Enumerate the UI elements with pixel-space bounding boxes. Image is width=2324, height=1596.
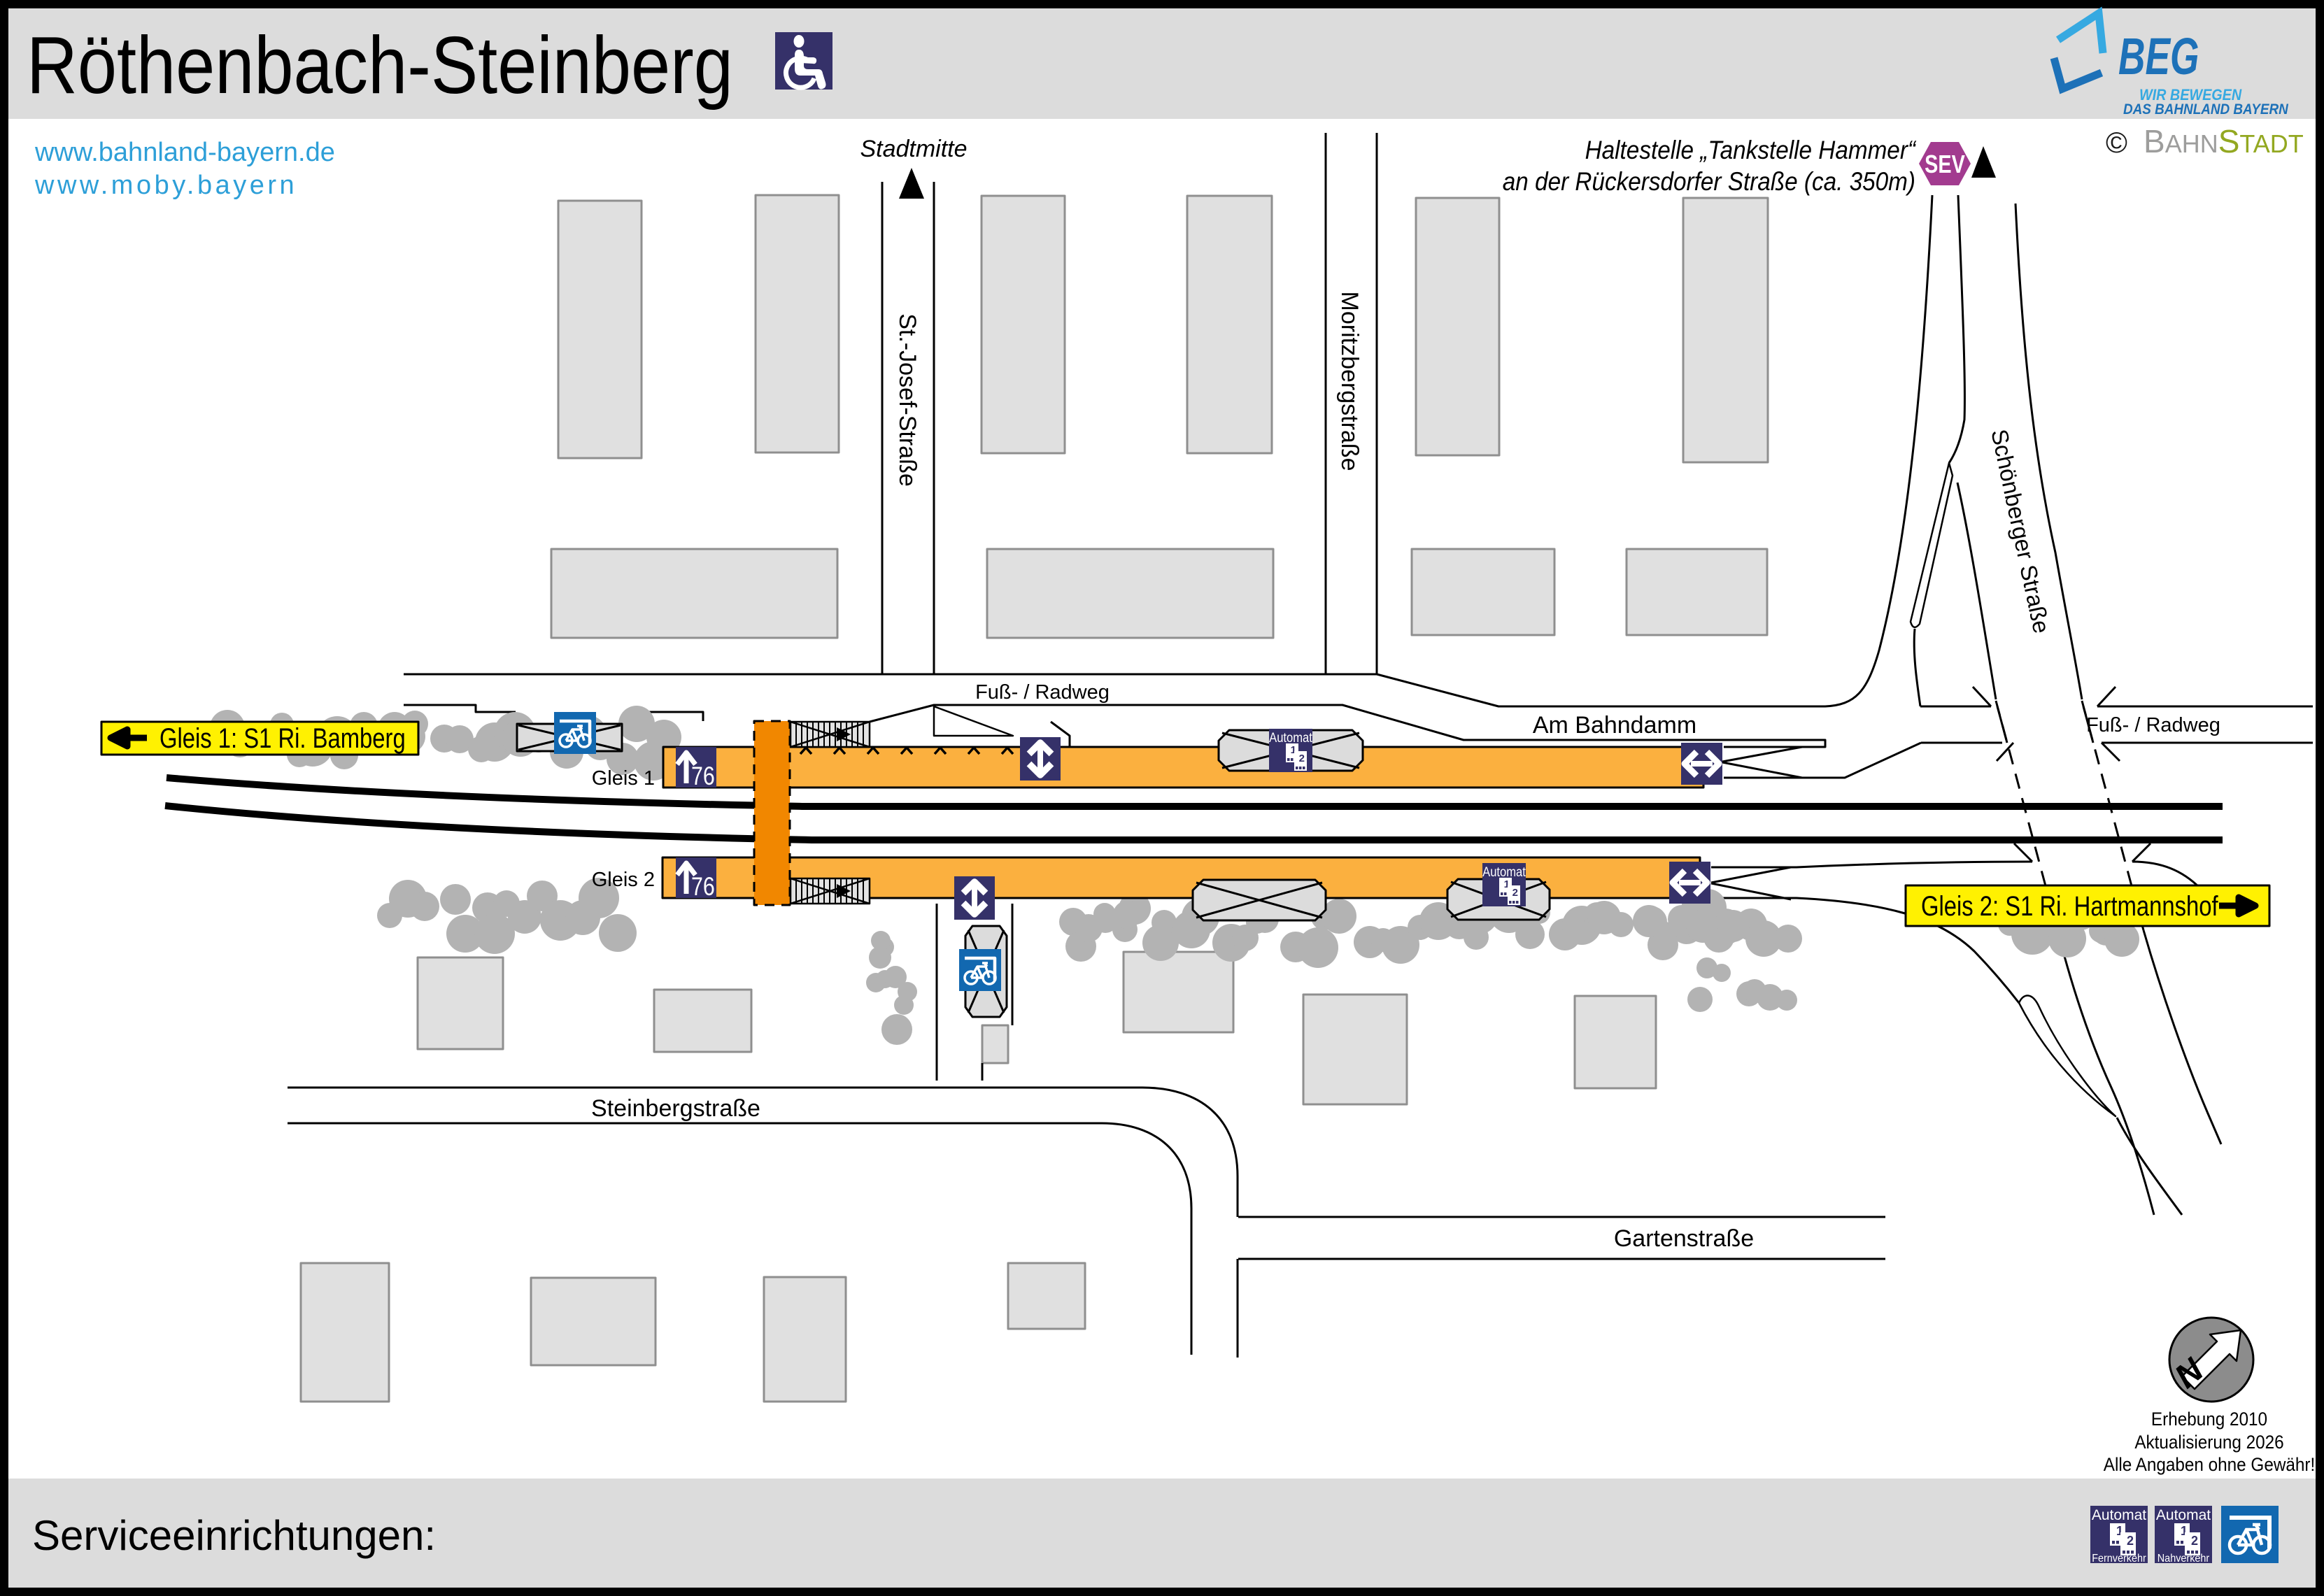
svg-text:76: 76 [691, 762, 715, 791]
svg-text:Serviceeinrichtungen:: Serviceeinrichtungen: [32, 1512, 436, 1559]
svg-text:Haltestelle „Tankstelle Hammer: Haltestelle „Tankstelle Hammer“ [1585, 136, 1918, 164]
svg-text:Stadtmitte: Stadtmitte [860, 136, 967, 162]
svg-text:76: 76 [691, 872, 715, 902]
svg-text:St.-Josef-Straße: St.-Josef-Straße [894, 313, 921, 487]
svg-text:an der Rückersdorfer Straße (c: an der Rückersdorfer Straße (ca. 350m) [1503, 167, 1915, 196]
svg-text:Aktualisierung 2026: Aktualisierung 2026 [2134, 1432, 2283, 1453]
svg-text:Gleis 1: S1 Ri. Bamberg: Gleis 1: S1 Ri. Bamberg [160, 722, 406, 754]
svg-text:DAS BAHNLAND BAYERN: DAS BAHNLAND BAYERN [2123, 101, 2288, 117]
svg-text:©: © [2106, 126, 2127, 159]
svg-text:Am Bahndamm: Am Bahndamm [1533, 712, 1696, 739]
svg-text:Erhebung 2010: Erhebung 2010 [2151, 1409, 2267, 1430]
svg-text:Fuß- / Radweg: Fuß- / Radweg [975, 681, 1110, 704]
svg-text:www.moby.bayern: www.moby.bayern [34, 171, 297, 200]
svg-text:Gleis 1: Gleis 1 [592, 767, 655, 790]
svg-text:BEG: BEG [2118, 27, 2199, 85]
svg-text:Fuß- / Radweg: Fuß- / Radweg [2086, 714, 2220, 736]
svg-text:Gleis 2: S1 Ri. Hartmannshof: Gleis 2: S1 Ri. Hartmannshof [1921, 890, 2218, 922]
svg-text:Moritzbergstraße: Moritzbergstraße [1336, 292, 1363, 471]
svg-text:www.bahnland-bayern.de: www.bahnland-bayern.de [34, 138, 335, 167]
svg-text:2: 2 [2191, 1534, 2198, 1548]
svg-text:Steinbergstraße: Steinbergstraße [591, 1095, 760, 1122]
svg-text:Gleis 2: Gleis 2 [592, 869, 655, 891]
svg-text:SEV: SEV [1925, 150, 1965, 178]
svg-text:Automat: Automat [2156, 1507, 2211, 1523]
svg-text:Nahverkehr: Nahverkehr [2158, 1552, 2209, 1565]
svg-text:Fernverkehr: Fernverkehr [2092, 1552, 2146, 1565]
svg-text:Automat: Automat [2092, 1507, 2146, 1523]
svg-text:2: 2 [2127, 1534, 2134, 1548]
svg-text:Alle Angaben ohne Gewähr!: Alle Angaben ohne Gewähr! [2104, 1455, 2315, 1475]
svg-text:Gartenstraße: Gartenstraße [1614, 1225, 1754, 1252]
svg-text:Röthenbach-Steinberg: Röthenbach-Steinberg [27, 21, 733, 111]
